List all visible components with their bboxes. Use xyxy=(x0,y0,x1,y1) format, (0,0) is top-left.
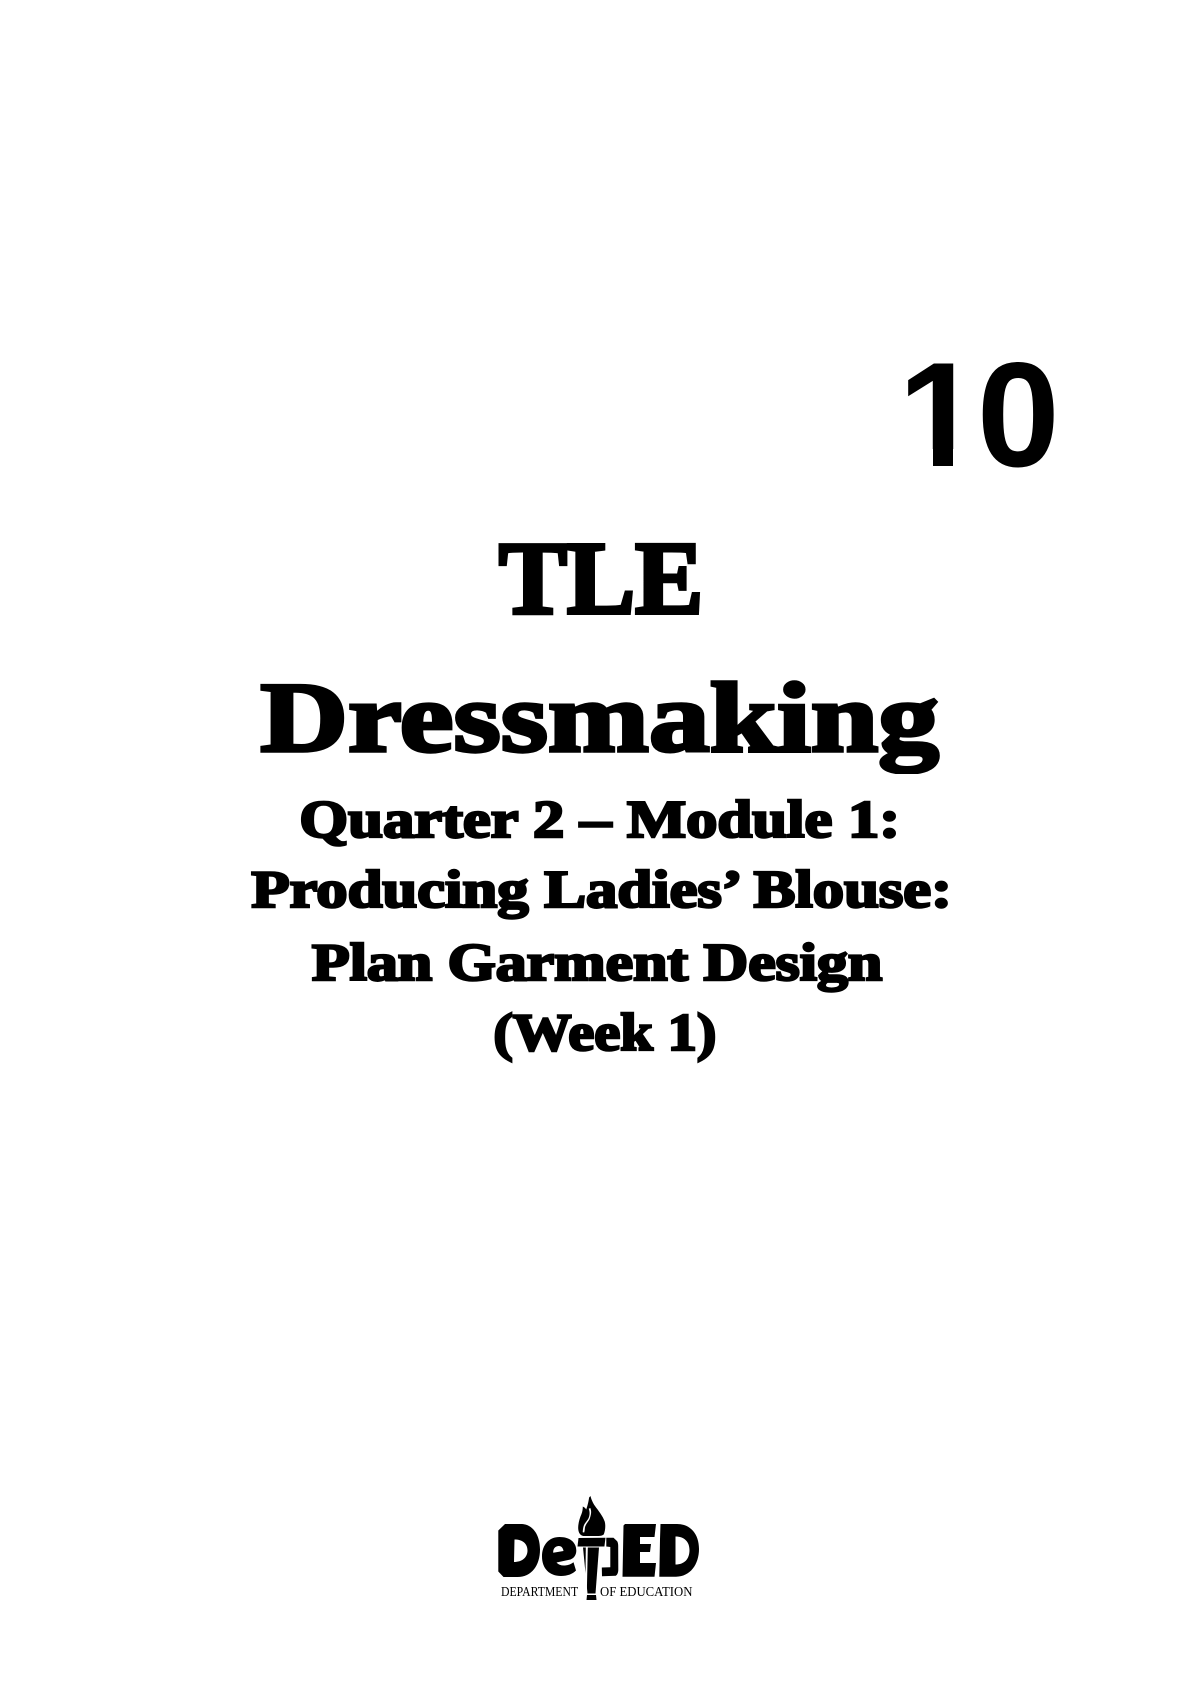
svg-text:DEPARTMENT: DEPARTMENT xyxy=(501,1583,578,1599)
svg-text:OF EDUCATION: OF EDUCATION xyxy=(600,1583,693,1599)
